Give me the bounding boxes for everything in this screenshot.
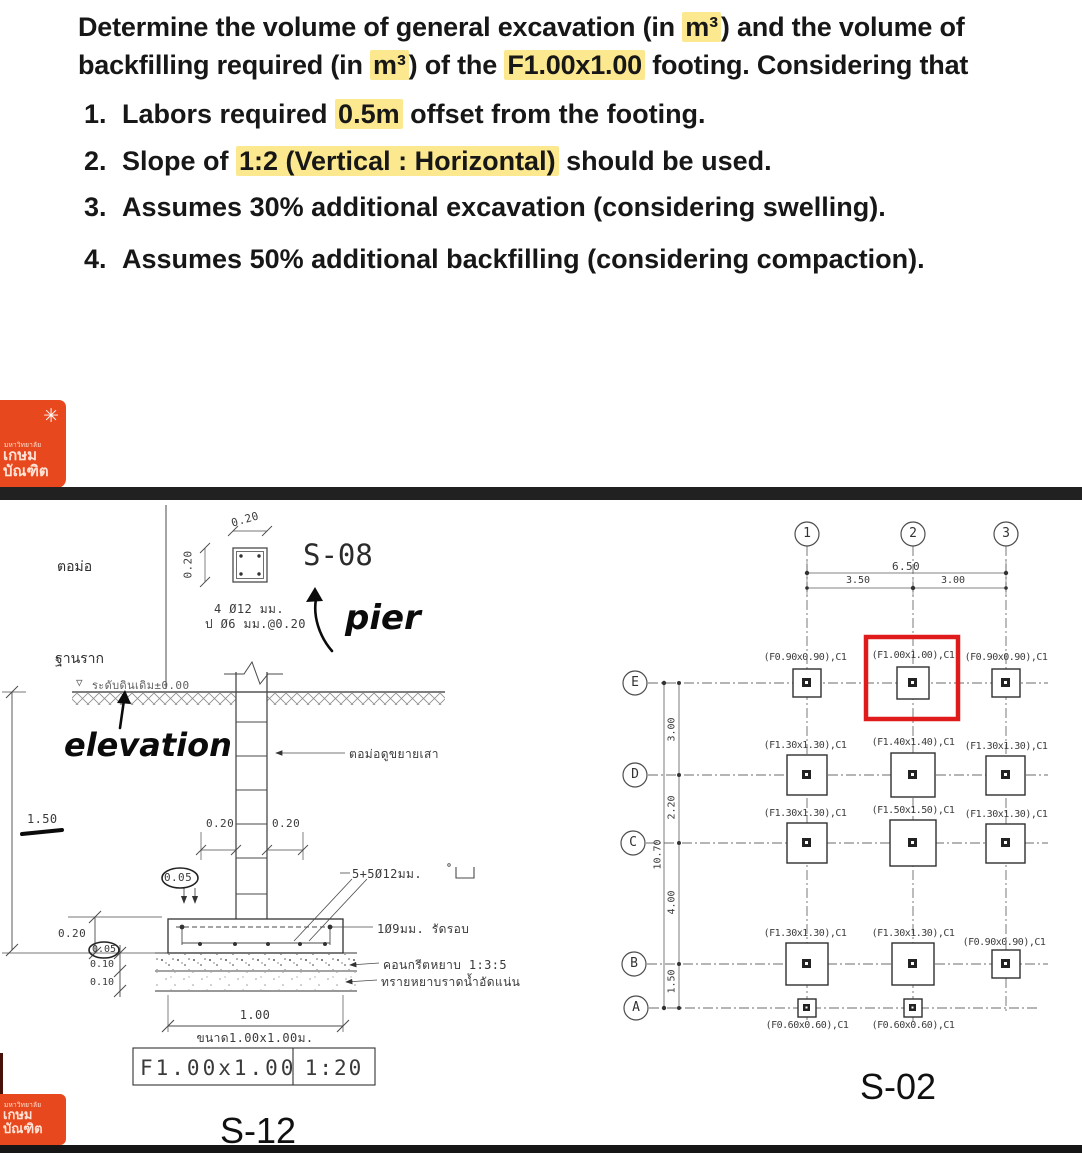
footing-label: (F1.30x1.30),C1 (750, 808, 860, 819)
logo-star-icon: ✳ (43, 405, 59, 428)
footing-width-dim: 1.00 (225, 1008, 285, 1022)
text-segment: backfilling required (in (78, 50, 370, 80)
list-item-2: Slope of 1:2 (Vertical : Horizontal) sho… (122, 146, 772, 177)
text-segment: Slope of (122, 146, 236, 176)
sand-dim: 0.10 (90, 977, 114, 988)
hand-annotations (22, 587, 332, 958)
handwritten-elevation: elevation (64, 726, 232, 764)
lean-concrete-dim: 0.10 (90, 959, 114, 970)
list-item-4: Assumes 50% additional backfilling (cons… (122, 244, 925, 275)
column-note: ตอม่อดูขยายเสา (349, 745, 439, 764)
handwritten-pier: pier (345, 598, 421, 638)
highlight-offset: 0.5m (335, 99, 403, 129)
pier-label-thai: ตอม่อ (57, 556, 92, 578)
footing-label: (F1.30x1.30),C1 (750, 928, 860, 939)
projection-dim: 0.05 (92, 944, 116, 955)
text-segment: Labors required (122, 99, 335, 129)
university-logo-top: ✳ มหาวิทยาลัย เกษม บัณฑิต (0, 400, 66, 488)
footing-rebar-note: 5+5Ø12มม. (352, 865, 422, 884)
question-line-1: Determine the volume of general excavati… (78, 12, 965, 43)
footing-label: (F0.90x0.90),C1 (949, 937, 1059, 948)
highlight-m3: m³ (370, 50, 409, 80)
highlight-m3: m³ (682, 12, 721, 42)
footing-label: (F1.30x1.30),C1 (750, 740, 860, 751)
footing-label: (F0.90x0.90),C1 (750, 652, 860, 663)
list-number-4: 4. (84, 244, 107, 275)
slide-page: Determine the volume of general excavati… (0, 0, 1082, 1153)
plan-dim-span-dc: 2.20 (667, 788, 678, 828)
list-number-2: 2. (84, 146, 107, 177)
pier-dim-left: 0.20 (182, 547, 195, 583)
highlight-slope: 1:2 (Vertical : Horizontal) (236, 146, 559, 176)
text-segment: Assumes 50% additional backfilling (cons… (122, 244, 925, 274)
plan-dim-span-12: 3.50 (838, 575, 878, 586)
list-number-3: 3. (84, 192, 107, 223)
text-segment: ) of the (409, 50, 505, 80)
footing-label: (F1.30x1.30),C1 (951, 741, 1061, 752)
column-dim-right: 0.20 (272, 817, 300, 830)
left-edge-mark (0, 1053, 3, 1094)
grid-bubble-b: B (622, 956, 646, 971)
text-segment: ) and the volume of (721, 12, 965, 42)
grid-bubble-a: A (624, 1000, 648, 1015)
list-number-1: 1. (84, 99, 107, 130)
footing-label: (F0.90x0.90),C1 (951, 652, 1061, 663)
sand-layer-note: ทรายหยาบราดน้ำอัดแน่น (381, 973, 520, 992)
plan-dim-total-width: 6.50 (886, 560, 926, 573)
title-block-scale: 1:20 (296, 1056, 372, 1080)
plan-dim-span-cb: 4.00 (667, 883, 678, 923)
footing-label: (F1.30x1.30),C1 (951, 809, 1061, 820)
highlight-footing-size: F1.00x1.00 (504, 50, 645, 80)
text-segment: footing. Considering that (645, 50, 968, 80)
plan-dim-total-height: 10.70 (653, 833, 664, 877)
footing-label: (F0.60x0.60),C1 (752, 1020, 862, 1031)
ground-level-note: ระดับดินเดิม±0.00 (92, 676, 189, 694)
text-segment: Determine the volume of general excavati… (78, 12, 682, 42)
pier-stirrup-note: ป Ø6 มม.@0.20 (205, 615, 306, 634)
column-offset-dim: 0.05 (164, 871, 192, 884)
plan-dim-span-ba: 1.50 (667, 962, 678, 1002)
logo-name-line2: บัณฑิต (3, 464, 49, 479)
detail-ref-s08: S-08 (303, 538, 373, 572)
list-item-3: Assumes 30% additional excavation (consi… (122, 192, 886, 223)
logo-name-line1: เกษม (3, 448, 37, 463)
grid-bubble-1: 1 (795, 526, 819, 541)
divider-bar-bottom (0, 1145, 1082, 1153)
footing-size-note: ขนาด1.00x1.00ม. (185, 1029, 325, 1048)
title-block-name: F1.00x1.00 (140, 1056, 290, 1080)
grid-bubble-d: D (623, 767, 647, 782)
footing-thickness-dim: 0.20 (58, 927, 86, 940)
question-line-2: backfilling required (in m³) of the F1.0… (78, 50, 968, 81)
list-item-1: Labors required 0.5m offset from the foo… (122, 99, 706, 130)
grid-bubble-e: E (623, 675, 647, 690)
grid-bubble-2: 2 (901, 526, 925, 541)
footing-label: (F0.60x0.60),C1 (858, 1020, 968, 1031)
text-segment: Assumes 30% additional excavation (consi… (122, 192, 886, 222)
text-segment: should be used. (559, 146, 772, 176)
divider-bar-top (0, 487, 1082, 500)
ground-marker-icon: ▽ (76, 676, 83, 689)
sheet-number-s02: S-02 (860, 1066, 936, 1108)
column-dim-left: 0.20 (206, 817, 234, 830)
perimeter-tie-note: 1Ø9มม. รัดรอบ (377, 920, 469, 939)
text-segment: offset from the footing. (403, 99, 706, 129)
footing-label-thai: ฐานราก (55, 648, 104, 670)
s12-footing-section (2, 505, 474, 1085)
plan-dim-span-ed: 3.00 (667, 710, 678, 750)
grid-bubble-c: C (621, 835, 645, 850)
plan-dim-span-23: 3.00 (933, 575, 973, 586)
depth-dim-150: 1.50 (27, 812, 58, 826)
grid-bubble-3: 3 (994, 526, 1018, 541)
